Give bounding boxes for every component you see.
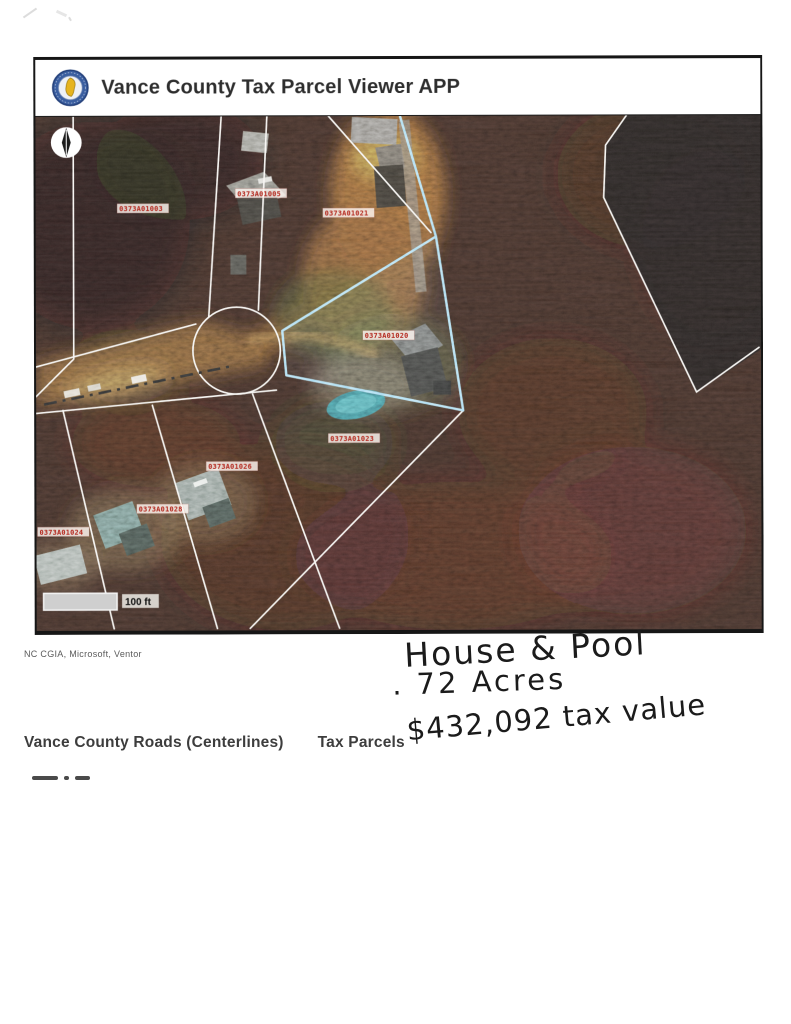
map-attribution: NC CGIA, Microsoft, Ventor (24, 649, 142, 659)
svg-text:0373A01023: 0373A01023 (330, 435, 374, 443)
app-frame: Vance County Tax Parcel Viewer APP (33, 55, 764, 635)
aerial-parcel-map: 0373A01003 0373A01005 0373A01021 0373A01… (35, 115, 761, 631)
centerline-dot (64, 776, 69, 780)
svg-text:0373A01005: 0373A01005 (237, 190, 281, 198)
legend-parcels-label: Tax Parcels (318, 734, 405, 752)
parcel-id-label: 0373A01028 (137, 504, 189, 514)
app-header: Vance County Tax Parcel Viewer APP (35, 58, 760, 117)
app-title: Vance County Tax Parcel Viewer APP (101, 75, 460, 99)
road-centerline-symbol (32, 776, 405, 780)
north-arrow-icon (51, 127, 82, 158)
svg-text:0373A01021: 0373A01021 (325, 210, 369, 218)
parcel-id-label: 0373A01005 (235, 188, 287, 198)
svg-text:0373A01020: 0373A01020 (365, 332, 409, 340)
map-canvas: 0373A01003 0373A01005 0373A01021 0373A01… (35, 115, 761, 631)
parcel-id-label: 0373A01003 (117, 204, 169, 214)
parcel-id-label: 0373A01024 (37, 527, 89, 537)
svg-text:0373A01024: 0373A01024 (39, 529, 83, 537)
handwritten-notes: House & Pool . 72 Acres $432,092 tax val… (392, 626, 782, 731)
svg-text:0373A01028: 0373A01028 (139, 506, 183, 514)
legend: Vance County Roads (Centerlines) Tax Par… (24, 734, 405, 780)
svg-text:0373A01003: 0373A01003 (119, 205, 163, 213)
texture-overlay (35, 115, 761, 631)
scanned-page: Vance County Tax Parcel Viewer APP (0, 0, 791, 1024)
centerline-dash (32, 776, 58, 780)
legend-roads-label: Vance County Roads (Centerlines) (24, 734, 284, 752)
county-seal-logo (51, 69, 89, 107)
pencil-mark (68, 17, 72, 21)
scale-bar: 100 ft (44, 593, 159, 610)
pencil-mark (23, 8, 37, 19)
pencil-mark (56, 10, 67, 17)
parcel-id-label: 0373A01026 (206, 461, 258, 471)
svg-text:0373A01026: 0373A01026 (208, 463, 252, 471)
centerline-dash (75, 776, 90, 780)
parcel-id-label: 0373A01020 (363, 330, 415, 340)
parcel-id-label: 0373A01021 (323, 208, 375, 218)
scale-label: 100 ft (125, 597, 152, 608)
parcel-id-label: 0373A01023 (328, 433, 380, 443)
